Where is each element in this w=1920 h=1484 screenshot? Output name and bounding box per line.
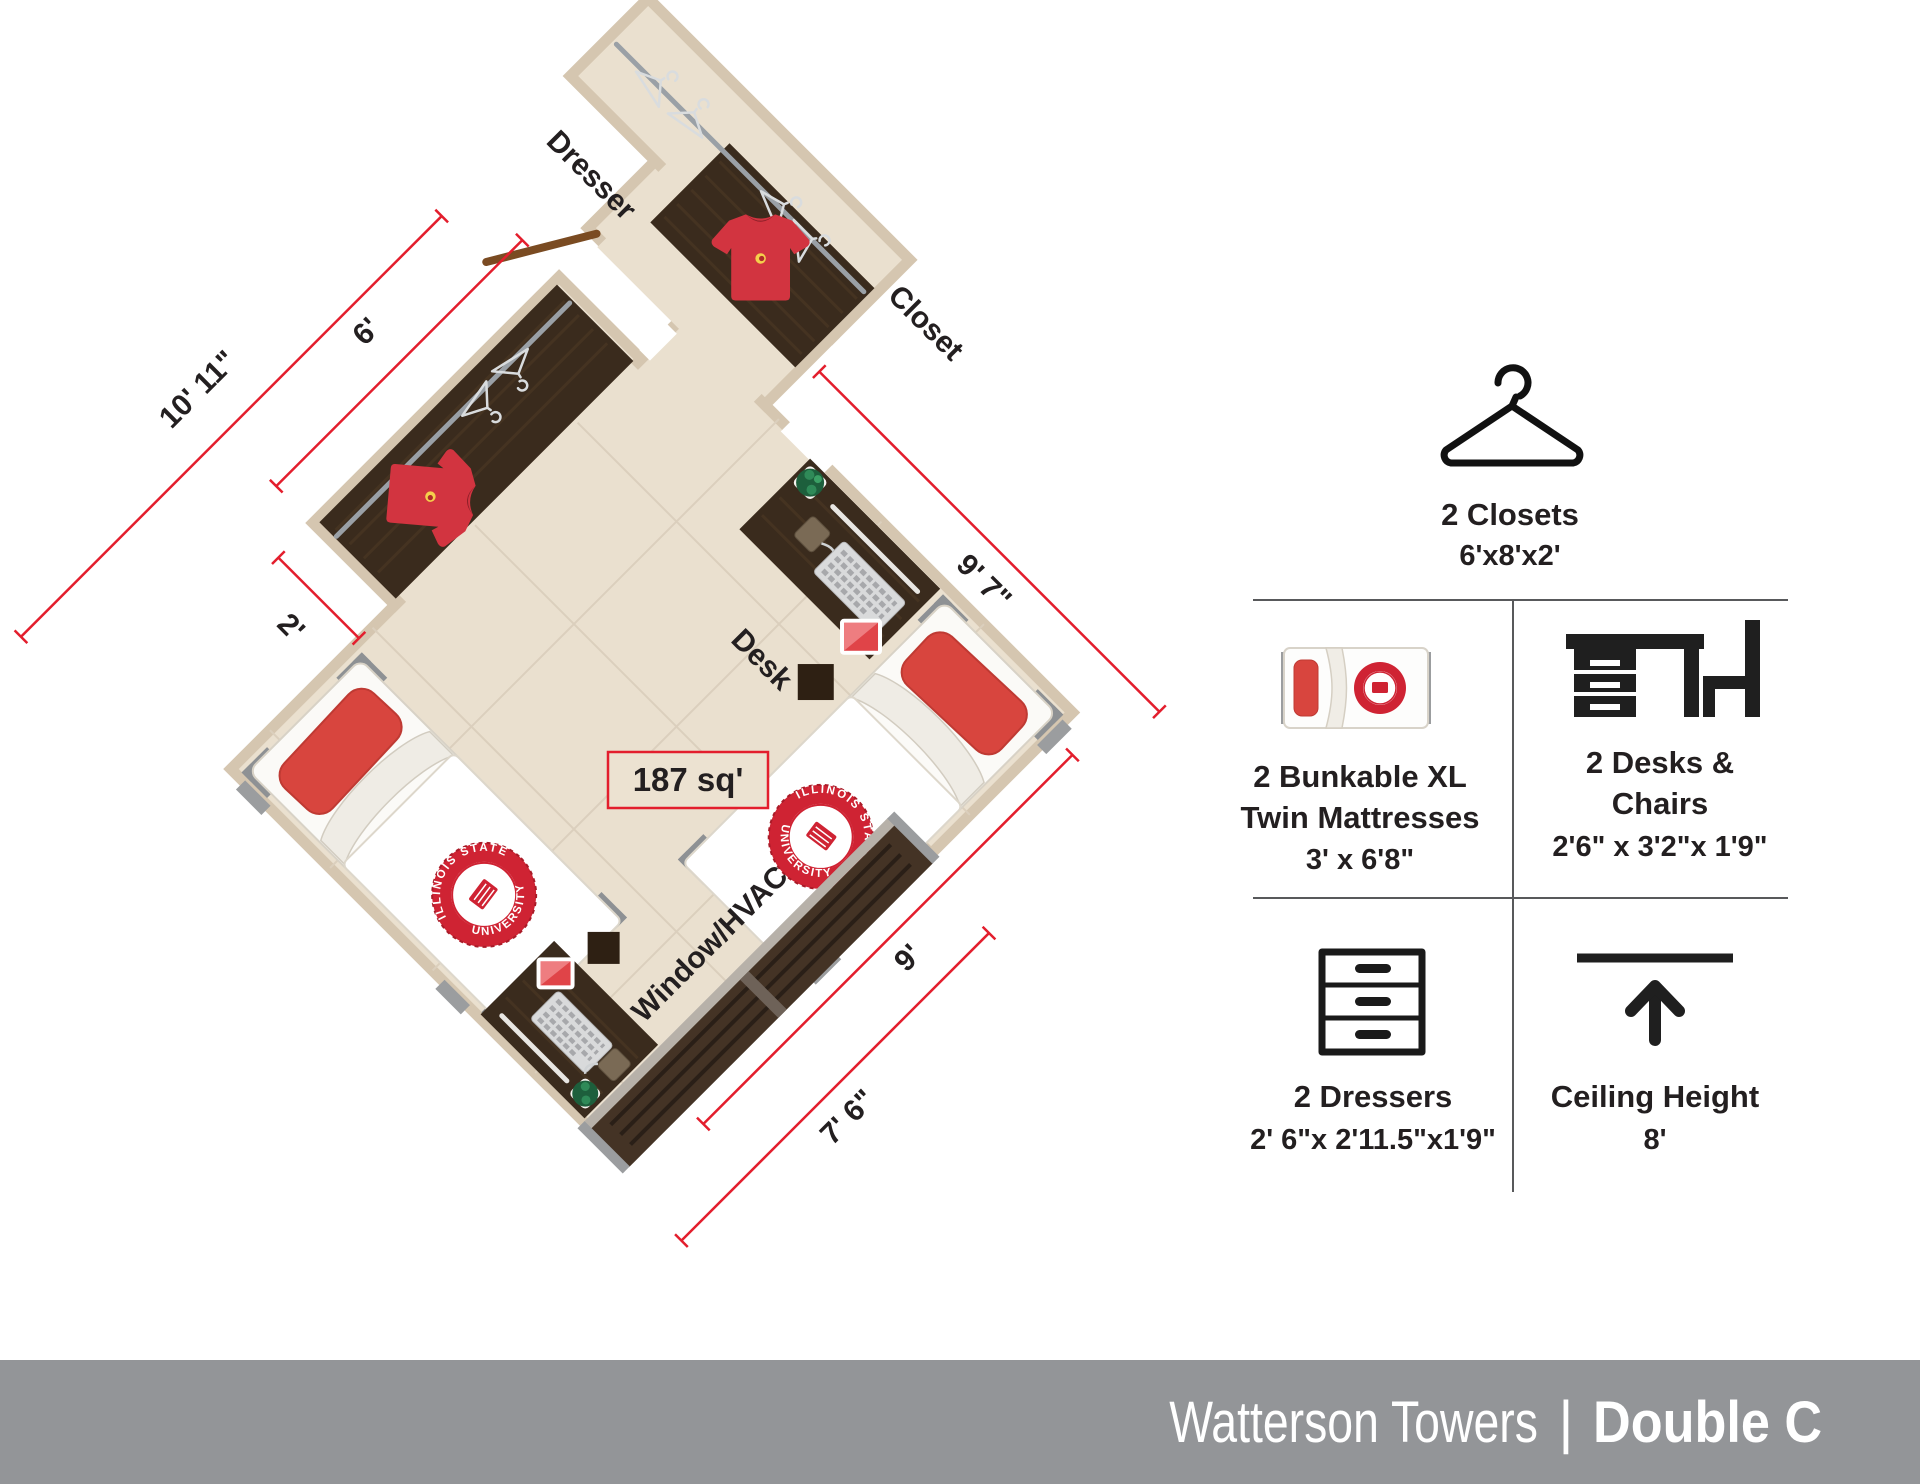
area-label: 187 sq' bbox=[633, 761, 744, 798]
legend-desks-line1: 2 Desks & bbox=[1586, 745, 1734, 780]
chair-1 bbox=[798, 664, 834, 700]
floor-plan-canvas: ILLINOIS STATE UNIVERSITY bbox=[0, 0, 1920, 1360]
hanger-icon bbox=[1444, 368, 1580, 463]
legend-closets-title: 2 Closets bbox=[1441, 497, 1579, 532]
legend-closets-size: 6'x8'x2' bbox=[1459, 540, 1560, 572]
legend-desks-line2: Chairs bbox=[1612, 786, 1708, 821]
legend: 2 Closets 6'x8'x2' 2 Bunkable XL Twin Ma… bbox=[1241, 368, 1788, 1192]
legend-dressers-size: 2' 6"x 2'11.5"x1'9" bbox=[1250, 1124, 1496, 1156]
title-separator: | bbox=[1558, 1389, 1573, 1456]
desk-chair-icon bbox=[1566, 620, 1760, 717]
floor-plan: Closet Dresser Desk Window/HVAC 9' 7" 9'… bbox=[0, 0, 1319, 1302]
closet-label: Closet bbox=[882, 279, 970, 367]
door-leaf bbox=[486, 193, 596, 303]
legend-dressers-title: 2 Dressers bbox=[1294, 1079, 1453, 1114]
dim-right-side: 9' bbox=[888, 938, 928, 978]
legend-mattresses-size: 3' x 6'8" bbox=[1306, 844, 1414, 876]
legend-mattresses-line2: Twin Mattresses bbox=[1241, 800, 1480, 835]
dim-closet-depth: 2' bbox=[271, 607, 311, 647]
ceiling-height-icon bbox=[1577, 958, 1733, 1040]
title-bar: Watterson Towers | Double C bbox=[0, 1360, 1920, 1484]
dim-window-wall: 7' 6" bbox=[814, 1083, 882, 1151]
area-label-box: 187 sq' bbox=[608, 752, 768, 808]
legend-ceiling-title: Ceiling Height bbox=[1551, 1079, 1759, 1114]
room-type: Double C bbox=[1593, 1389, 1822, 1456]
dresser-icon bbox=[1322, 952, 1422, 1052]
legend-ceiling-size: 8' bbox=[1643, 1124, 1666, 1156]
legend-mattresses-line1: 2 Bunkable XL bbox=[1253, 759, 1467, 794]
legend-desks-size: 2'6" x 3'2"x 1'9" bbox=[1552, 831, 1767, 863]
chair-2 bbox=[588, 932, 620, 964]
dim-left-wall: 10' 11" bbox=[153, 344, 243, 434]
dim-closet-length: 6' bbox=[346, 312, 386, 352]
mattress-icon bbox=[1281, 648, 1431, 728]
building-name: Watterson Towers bbox=[1170, 1389, 1539, 1456]
tablet bbox=[840, 619, 882, 655]
tablet bbox=[537, 957, 575, 989]
